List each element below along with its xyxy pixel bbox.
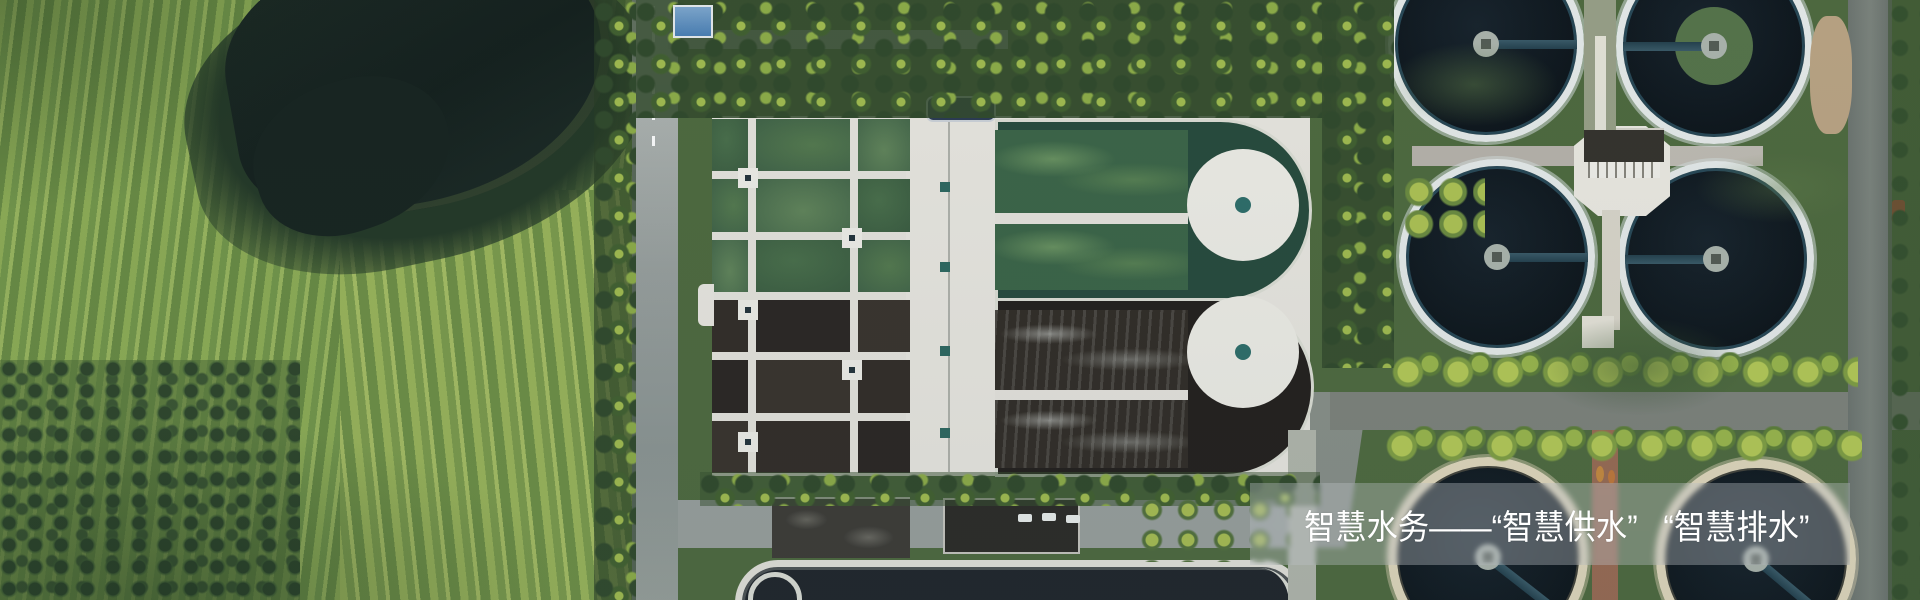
basin-cell — [756, 179, 850, 231]
slogan-bar: 智慧水务——“智慧供水”“智慧排水” — [1250, 483, 1850, 565]
basin-cell — [712, 240, 748, 292]
dirt-patch — [1810, 16, 1852, 134]
hero-banner: 智慧水务——“智慧供水”“智慧排水” — [0, 0, 1920, 600]
clarifier-bridge — [1486, 40, 1577, 49]
tree-band-top — [636, 0, 1336, 118]
clarifier-hub — [1703, 246, 1729, 272]
pump-house-roof — [1584, 128, 1664, 162]
oxidation-ditch-oval-tank — [735, 560, 1305, 600]
equipment-dot — [940, 262, 950, 272]
clarifier-top-left — [1388, 0, 1584, 142]
green-lane-1 — [995, 130, 1188, 213]
car — [1066, 515, 1080, 523]
walkway-pad — [738, 168, 758, 188]
road-horizontal-right — [1330, 392, 1920, 430]
trees-right-edge — [1888, 0, 1920, 600]
car — [1018, 514, 1032, 522]
basin-cell-dark — [858, 421, 910, 473]
walkway-pad — [842, 360, 862, 380]
slogan-part1: 智慧水务——“智慧供水” — [1304, 509, 1638, 547]
tree-row-below-road — [1386, 426, 1862, 466]
aeration-lane-2 — [995, 400, 1188, 468]
walkway-to-pad — [1602, 210, 1620, 330]
tree-column-roadside — [594, 0, 636, 600]
lane-wall — [995, 390, 1188, 400]
tree-row-above-road — [1392, 352, 1858, 396]
tree-puffs-mid — [1405, 178, 1485, 242]
equipment-dot — [940, 182, 950, 192]
walkway-pad — [738, 300, 758, 320]
basin-cell — [756, 240, 850, 292]
slogan-text: 智慧水务——“智慧供水”“智慧排水” — [1304, 500, 1809, 549]
walkway-pad — [738, 432, 758, 452]
clarifier-hub — [1701, 33, 1727, 59]
basin-cell — [858, 179, 910, 231]
basin-cell — [712, 119, 748, 171]
slogan-part2: “智慧排水” — [1663, 509, 1809, 547]
white-end-cap-upper — [1187, 149, 1299, 261]
basin-cell-dark — [756, 421, 850, 473]
basin-cell-dark — [756, 300, 850, 352]
aeration-lane-1 — [995, 310, 1188, 390]
equipment-dot — [940, 346, 950, 356]
basin-cell-dark — [756, 360, 850, 412]
plant-building-a — [772, 497, 910, 558]
plant-building-b — [945, 500, 1078, 552]
walkway-between-clarifiers — [1595, 36, 1606, 130]
small-concrete-pad — [1582, 316, 1614, 348]
lane-wall — [995, 213, 1188, 224]
basin-cell-dark — [858, 300, 910, 352]
flower-bed — [1596, 466, 1604, 482]
clarifier-hub — [1484, 244, 1510, 270]
basin-cell-dark — [858, 360, 910, 412]
clarifier-top-right — [1616, 0, 1812, 144]
pump-house-colonnade — [1588, 162, 1660, 178]
hedge-column-east — [1322, 0, 1394, 368]
clarifier-bridge — [1497, 253, 1588, 262]
green-lane-2 — [995, 224, 1188, 290]
blue-roof-gatehouse — [673, 5, 713, 38]
flower-bed — [1608, 470, 1615, 484]
basin-cell — [858, 119, 910, 171]
block-side-tab — [698, 284, 714, 326]
basin-cell — [756, 119, 850, 171]
equipment-dot — [940, 428, 950, 438]
white-end-cap-lower — [1187, 296, 1299, 408]
walkway-seam — [948, 120, 950, 472]
basin-cell — [858, 240, 910, 292]
road-vertical-right — [1848, 0, 1892, 600]
orchard-trees-bottom-left — [0, 360, 300, 600]
car — [1042, 513, 1056, 521]
walkway-pad — [842, 228, 862, 248]
clarifier-hub — [1473, 31, 1499, 57]
basin-cell-dark — [712, 360, 748, 412]
